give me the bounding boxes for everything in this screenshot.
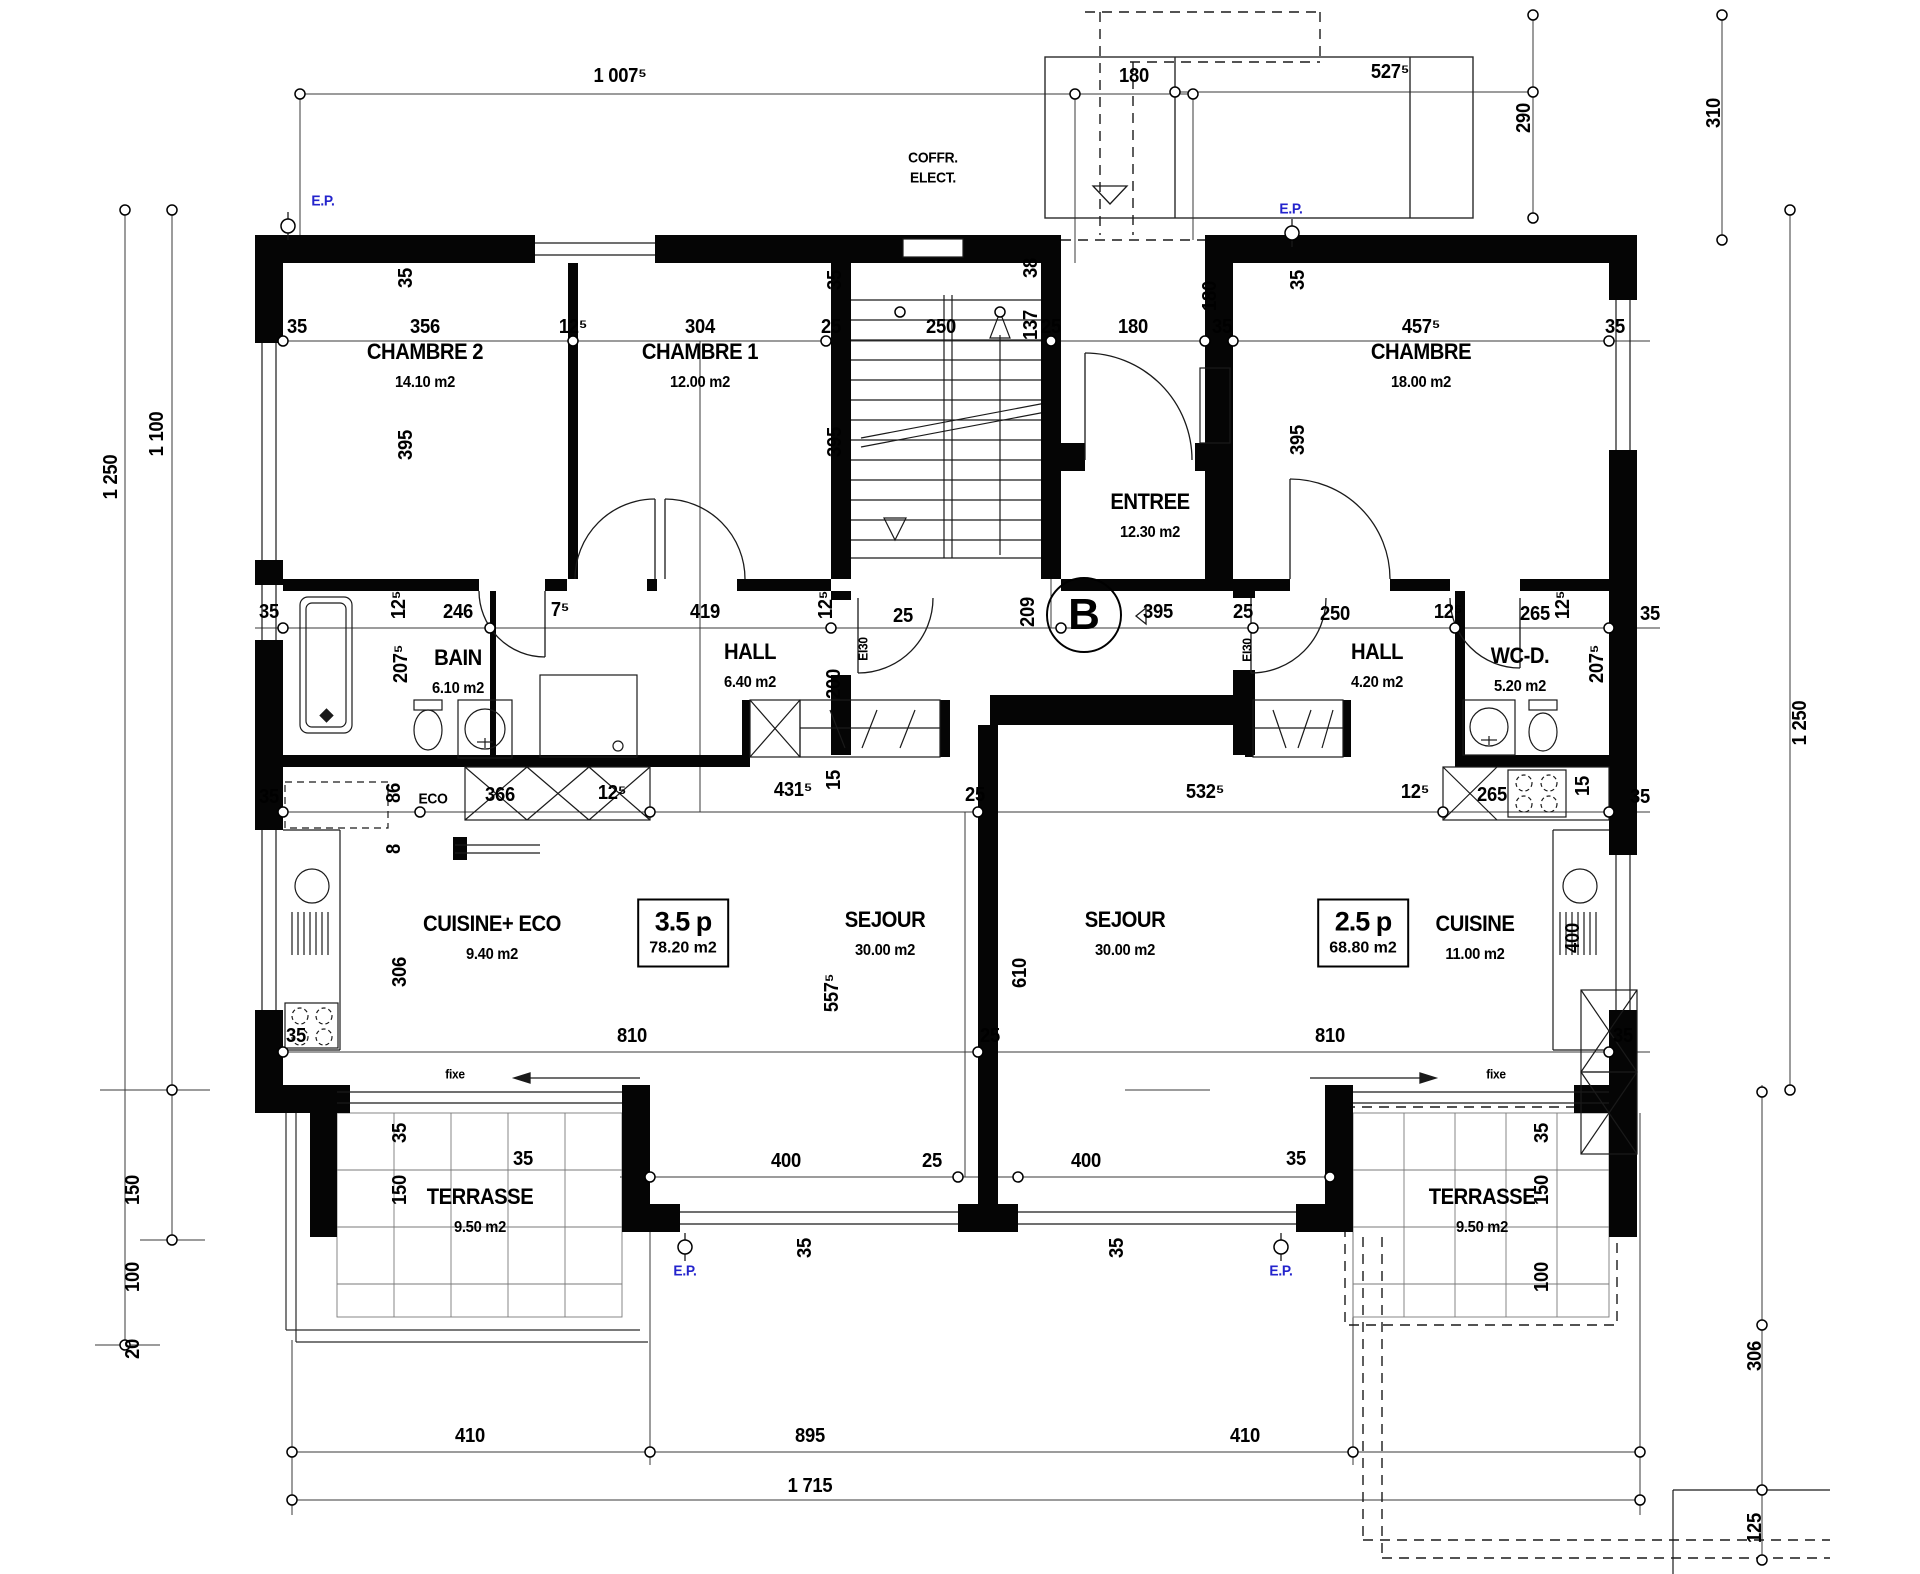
- room-area-label: 12.00 m2: [670, 375, 730, 391]
- dimension-label: 209: [1018, 597, 1038, 627]
- dimension-label: 532⁵: [1186, 782, 1224, 802]
- dimension-label: 25: [1233, 602, 1253, 622]
- dimension-label: 265: [1477, 785, 1507, 805]
- room-area-label: 12.30 m2: [1120, 525, 1180, 541]
- dimension-label: 410: [455, 1426, 485, 1446]
- dimension-label: 395: [1143, 602, 1173, 622]
- apartment-box-3-5p: 3.5 p 78.20 m2: [637, 899, 729, 968]
- dimension-label: 8: [384, 844, 404, 854]
- dimension-label: 457⁵: [1402, 317, 1440, 337]
- room-area-label: 30.00 m2: [855, 943, 915, 959]
- dimension-label: 35: [287, 317, 307, 337]
- dimension-label: EI30: [1241, 638, 1254, 662]
- dimension-label: 356: [410, 317, 440, 337]
- rainwater-label: E.P.: [311, 194, 334, 209]
- dimension-label: 35: [1107, 1238, 1127, 1258]
- dimension-label: 180: [1200, 281, 1220, 311]
- dimension-label: 35: [825, 270, 845, 290]
- building-entrance-label: B: [1046, 577, 1122, 653]
- dimension-label: 310: [1704, 98, 1724, 128]
- text-label: ECO: [418, 792, 447, 807]
- dimension-label: EI30: [857, 637, 870, 661]
- dimension-label: 400: [1071, 1151, 1101, 1171]
- dimension-label: 12⁵: [1553, 591, 1573, 619]
- room-name-label: CHAMBRE 1: [642, 341, 758, 363]
- dimension-label: 431⁵: [774, 780, 812, 800]
- dimension-label: 12⁵: [559, 317, 587, 337]
- dimension-label: 395: [396, 430, 416, 460]
- room-area-label: 6.40 m2: [724, 675, 776, 691]
- dimension-label: 35: [1613, 1026, 1633, 1046]
- dimension-label: 246: [443, 602, 473, 622]
- room-area-label: 6.10 m2: [432, 681, 484, 697]
- room-name-label: TERRASSE: [427, 1186, 534, 1208]
- dimension-label: 527⁵: [1371, 62, 1409, 82]
- room-name-label: CHAMBRE 2: [367, 341, 483, 363]
- dimension-label: 1 250: [1790, 701, 1810, 746]
- room-area-label: 30.00 m2: [1095, 943, 1155, 959]
- rainwater-label: E.P.: [1269, 1264, 1292, 1279]
- terrace-tiles-right: [1353, 1113, 1609, 1317]
- floor-plan-page: 3.5 p 78.20 m2 2.5 p 68.80 m2 B 1 007⁵18…: [0, 0, 1920, 1574]
- room-name-label: HALL: [1351, 641, 1403, 663]
- room-name-label: BAIN: [434, 647, 482, 669]
- room-name-label: ENTREE: [1110, 491, 1189, 513]
- dimension-label: 137: [1021, 310, 1041, 340]
- dimension-label: 557⁵: [822, 974, 842, 1012]
- apartment-area: 68.80 m2: [1329, 940, 1397, 958]
- fixtures: [283, 597, 1637, 1154]
- dimension-label: 250: [1320, 604, 1350, 624]
- dimension-label: 395: [825, 427, 845, 457]
- dimension-label: 35: [396, 268, 416, 288]
- dimension-label: 265: [1520, 604, 1550, 624]
- rainwater-label: E.P.: [1279, 202, 1302, 217]
- room-area-label: 9.50 m2: [454, 1220, 506, 1236]
- dimension-label: fixe: [1486, 1068, 1506, 1081]
- apartment-box-2-5p: 2.5 p 68.80 m2: [1317, 899, 1409, 968]
- dimension-label: 207⁵: [1587, 645, 1607, 683]
- dimension-label: 15: [1573, 776, 1593, 796]
- dimension-label: 12⁵: [1434, 602, 1462, 622]
- dimension-label: 25: [980, 1026, 1000, 1046]
- dimension-label: 410: [1230, 1426, 1260, 1446]
- dimension-label: 180: [1118, 317, 1148, 337]
- dimension-label: 35: [390, 1123, 410, 1143]
- dimension-label: 100: [1532, 1262, 1552, 1292]
- dimension-label: 35: [795, 1238, 815, 1258]
- dimension-label: 290: [1514, 103, 1534, 133]
- dimension-label: 38: [1021, 258, 1041, 278]
- dimension-label: 395: [1288, 425, 1308, 455]
- dimension-label: 1 715: [788, 1476, 833, 1496]
- terrace-tiles-left: [337, 1113, 622, 1317]
- text-label: COFFR.: [908, 151, 958, 166]
- dimension-label: 35: [259, 787, 279, 807]
- dimension-label: 1 100: [147, 412, 167, 457]
- dimension-label: 35: [513, 1149, 533, 1169]
- room-area-label: 11.00 m2: [1445, 947, 1504, 963]
- dimension-label: 12⁵: [816, 591, 836, 619]
- dimension-label: 35: [1288, 270, 1308, 290]
- dimension-label: 125: [1745, 1513, 1765, 1543]
- dimension-label: 610: [1010, 958, 1030, 988]
- dimension-label: 150: [390, 1175, 410, 1205]
- dimension-label: 419: [690, 602, 720, 622]
- dimension-label: 25: [893, 606, 913, 626]
- dimension-label: 35: [1286, 1149, 1306, 1169]
- dimension-label: 35: [1605, 317, 1625, 337]
- dimension-label: 400: [771, 1151, 801, 1171]
- dimension-label: 366: [485, 785, 515, 805]
- dimension-label: 86: [384, 783, 404, 803]
- dimension-label: 35: [1640, 604, 1660, 624]
- room-area-label: 4.20 m2: [1351, 675, 1403, 691]
- rainwater-label: E.P.: [673, 1264, 696, 1279]
- dimension-label: 400: [1563, 923, 1583, 953]
- dimension-label: 35: [286, 1026, 306, 1046]
- dimension-label: 304: [685, 317, 715, 337]
- dimension-label: 25: [922, 1151, 942, 1171]
- room-area-label: 9.40 m2: [466, 947, 518, 963]
- room-name-label: TERRASSE: [1429, 1186, 1536, 1208]
- dimension-label: 25: [1041, 317, 1061, 337]
- dimension-label: 35: [1212, 317, 1232, 337]
- dimension-label: 207⁵: [391, 645, 411, 683]
- dimension-label: 12⁵: [1401, 782, 1429, 802]
- dimension-label: 20: [123, 1339, 143, 1359]
- dimension-label: 810: [617, 1026, 647, 1046]
- room-area-label: 5.20 m2: [1494, 679, 1546, 695]
- dimension-label: 7⁵: [551, 600, 569, 620]
- room-name-label: CUISINE: [1436, 913, 1515, 935]
- dimension-label: 15: [824, 770, 844, 790]
- dimension-label: 12⁵: [598, 783, 626, 803]
- room-name-label: WC-D.: [1491, 645, 1549, 667]
- dimension-label: 100: [123, 1262, 143, 1292]
- dimension-label: fixe: [445, 1068, 465, 1081]
- dimension-label: 306: [1745, 1341, 1765, 1371]
- room-name-label: CHAMBRE: [1371, 341, 1471, 363]
- dimension-label: 1 007⁵: [593, 66, 646, 86]
- dimension-label: 35: [259, 602, 279, 622]
- room-area-label: 14.10 m2: [395, 375, 455, 391]
- room-name-label: SEJOUR: [1085, 909, 1165, 931]
- dimension-label: 12⁵: [389, 591, 409, 619]
- dimension-label: 25: [821, 317, 841, 337]
- dimension-label: 35: [1532, 1123, 1552, 1143]
- dimension-label: 895: [795, 1426, 825, 1446]
- dimension-label: 200: [824, 669, 844, 699]
- room-name-label: SEJOUR: [845, 909, 925, 931]
- dimension-label: 150: [123, 1175, 143, 1205]
- text-label: ELECT.: [910, 171, 956, 186]
- dimension-label: 35: [1630, 787, 1650, 807]
- apartment-area: 78.20 m2: [649, 940, 717, 958]
- apartment-type: 2.5 p: [1329, 907, 1397, 938]
- room-area-label: 9.50 m2: [1456, 1220, 1508, 1236]
- dimension-label: 306: [390, 957, 410, 987]
- dimension-label: 25: [965, 785, 985, 805]
- dimension-label: 250: [926, 317, 956, 337]
- room-name-label: HALL: [724, 641, 776, 663]
- dimension-label: 180: [1119, 66, 1149, 86]
- room-name-label: CUISINE+ ECO: [423, 913, 561, 935]
- room-area-label: 18.00 m2: [1391, 375, 1451, 391]
- dimension-label: 810: [1315, 1026, 1345, 1046]
- apartment-type: 3.5 p: [649, 907, 717, 938]
- dimension-label: 1 250: [101, 455, 121, 500]
